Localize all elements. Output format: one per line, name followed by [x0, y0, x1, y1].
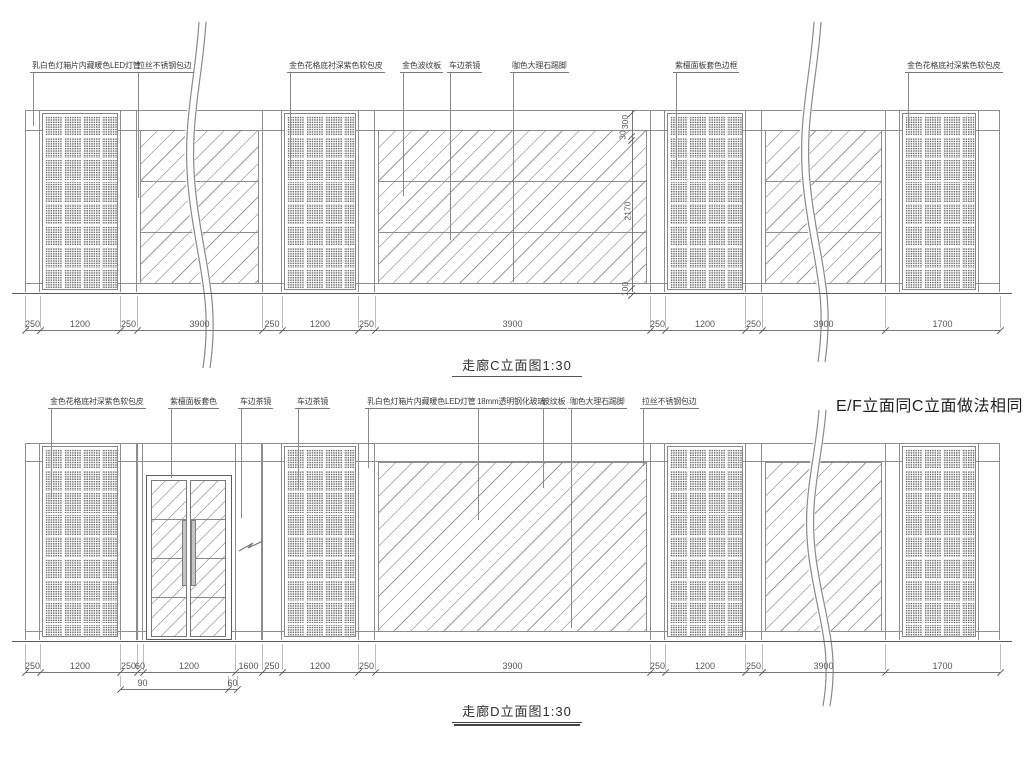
lattice-panel	[902, 113, 976, 290]
annotation-leader	[241, 409, 242, 518]
annotation-leader	[403, 73, 404, 196]
extension-line	[375, 296, 376, 328]
dimension-value: 60	[135, 661, 145, 671]
annotation-label: 咖色大理石踢脚	[510, 60, 569, 73]
dimension-value: 1200	[70, 661, 90, 671]
dimension-value: 1700	[932, 661, 952, 671]
extension-line	[665, 296, 666, 328]
door-handle-left	[182, 520, 187, 586]
wall-strip	[262, 110, 282, 292]
annotation-leader	[908, 73, 909, 128]
wall-strip	[745, 443, 762, 640]
wall-strip	[650, 443, 665, 640]
dimension-value: 250	[746, 661, 761, 671]
annotation-label: 乳白色灯箱片内藏暖色LED灯管	[30, 60, 143, 73]
annotation-label: 紫檀面板套色边框	[673, 60, 739, 73]
annotation-leader	[171, 409, 172, 478]
dimension-value: 250	[650, 319, 665, 329]
glass-panel	[378, 462, 647, 632]
extension-line	[375, 644, 376, 670]
annotation-leader	[513, 73, 514, 282]
extension-line	[262, 644, 263, 670]
annotation-label: 车边茶镜	[295, 396, 330, 409]
annotation-label: 金色花格底衬深紫色软包皮	[287, 60, 385, 73]
annotation-label: 车边茶镜	[447, 60, 482, 73]
dimension-value: 250	[25, 661, 40, 671]
annotation-label: 波纹板	[540, 396, 567, 409]
dimension-value: 2170	[622, 202, 632, 221]
extension-line	[235, 644, 236, 670]
note-ef-same-as-c: E/F立面同C立面做法相同	[836, 392, 1023, 416]
dimension-line	[25, 672, 1000, 673]
wall-strip	[137, 443, 143, 640]
dimension-tick	[997, 669, 1004, 676]
lattice-panel	[902, 446, 976, 637]
door-handle-right	[191, 520, 196, 586]
annotation-leader	[543, 409, 544, 488]
annotation-leader	[51, 409, 52, 498]
dimension-value: 1200	[310, 319, 330, 329]
dimension-value: 250	[264, 661, 279, 671]
extension-line	[282, 644, 283, 670]
dimension-value: 250	[359, 661, 374, 671]
extension-line	[262, 296, 263, 328]
cad-elevation-sheet: 走廊C立面图1:30 走廊D立面图1:30 E/F立面同C立面做法相同 2501…	[0, 0, 1024, 768]
annotation-label: 金色花格底衬深紫色软包皮	[905, 60, 1003, 73]
annotation-leader	[368, 409, 369, 468]
dimension-value: 250	[359, 319, 374, 329]
wall-strip	[650, 110, 665, 292]
dimension-value: 250	[650, 661, 665, 671]
dimension-line	[25, 330, 1000, 331]
dimension-value: 1200	[70, 319, 90, 329]
floor-line	[12, 293, 1012, 294]
annotation-label: 拉丝不锈钢包边	[135, 60, 194, 73]
dimension-value: 250	[121, 661, 136, 671]
dimension-value: 250	[746, 319, 761, 329]
extension-line	[40, 296, 41, 328]
dimension-tick	[997, 327, 1004, 334]
lattice-panel	[667, 446, 743, 637]
dimension-value: 60	[227, 678, 237, 688]
extension-line	[885, 644, 886, 670]
annotation-label: 拉丝不锈钢包边	[640, 396, 699, 409]
wall-strip	[358, 443, 375, 640]
extension-line	[137, 296, 138, 328]
extension-line	[40, 644, 41, 670]
dimension-value: 3900	[502, 319, 522, 329]
title-elevation-c: 走廊C立面图1:30	[452, 355, 582, 377]
annotation-leader	[478, 409, 479, 520]
wall-strip	[885, 443, 900, 640]
wall-strip	[120, 443, 137, 640]
annotation-leader	[450, 73, 451, 240]
title-elevation-d: 走廊D立面图1:30	[452, 701, 582, 723]
extension-line	[1000, 296, 1001, 328]
dimension-value: 1200	[310, 661, 330, 671]
dimension-line	[120, 689, 237, 690]
wall-strip	[745, 110, 762, 292]
dimension-value: 250	[121, 319, 136, 329]
zigzag-break-icon	[238, 540, 264, 554]
annotation-leader	[138, 73, 139, 198]
dimension-value: 30	[618, 130, 628, 139]
dimension-value: 100	[620, 281, 630, 295]
wall-strip	[978, 443, 1000, 640]
annotation-label: 车边茶镜	[238, 396, 273, 409]
lattice-panel	[42, 113, 118, 290]
extension-line	[120, 676, 121, 687]
annotation-label: 乳白色灯箱片内藏暖色LED灯管	[365, 396, 478, 409]
annotation-label: 紫檀面板套色	[168, 396, 219, 409]
annotation-leader	[643, 409, 644, 466]
dimension-value: 1200	[695, 319, 715, 329]
dimension-value: 1600	[238, 661, 258, 671]
lattice-panel	[667, 113, 743, 290]
extension-line	[1000, 644, 1001, 670]
extension-line	[282, 296, 283, 328]
dimension-value: 1700	[932, 319, 952, 329]
lattice-panel	[284, 113, 356, 290]
wall-strip	[25, 443, 40, 640]
lattice-panel	[284, 446, 356, 637]
annotation-label: 金色花格底衬深紫色软包皮	[48, 396, 146, 409]
extension-line	[885, 296, 886, 328]
annotation-leader	[298, 409, 299, 490]
wall-strip	[262, 443, 282, 640]
annotation-leader	[571, 409, 572, 628]
floor-line	[12, 641, 1012, 642]
extension-line	[762, 296, 763, 328]
annotation-leader	[676, 73, 677, 168]
wall-strip	[25, 110, 40, 292]
dimension-value: 1200	[695, 661, 715, 671]
dimension-value: 1200	[179, 661, 199, 671]
annotation-label: 18mm透明钢化玻璃	[475, 396, 547, 409]
break-line-c-left	[172, 22, 228, 368]
annotation-label: 咖色大理石踢脚	[568, 396, 627, 409]
wall-strip	[120, 110, 137, 292]
annotation-leader	[33, 73, 34, 126]
wall-strip	[978, 110, 1000, 292]
dimension-value: 3900	[813, 661, 833, 671]
dimension-value: 90	[137, 678, 147, 688]
extension-line	[665, 644, 666, 670]
extension-line	[762, 644, 763, 670]
annotation-leader	[290, 73, 291, 168]
annotation-label: 金色波纹板	[400, 60, 443, 73]
dimension-value: 3900	[189, 319, 209, 329]
lattice-panel	[42, 446, 118, 637]
wall-strip	[358, 110, 375, 292]
wall-strip	[885, 110, 900, 292]
dimension-value: 300	[620, 114, 630, 128]
break-line-c-right	[787, 22, 843, 362]
dimension-value: 250	[264, 319, 279, 329]
dimension-value: 3900	[813, 319, 833, 329]
dimension-value: 250	[25, 319, 40, 329]
dimension-value: 3900	[502, 661, 522, 671]
